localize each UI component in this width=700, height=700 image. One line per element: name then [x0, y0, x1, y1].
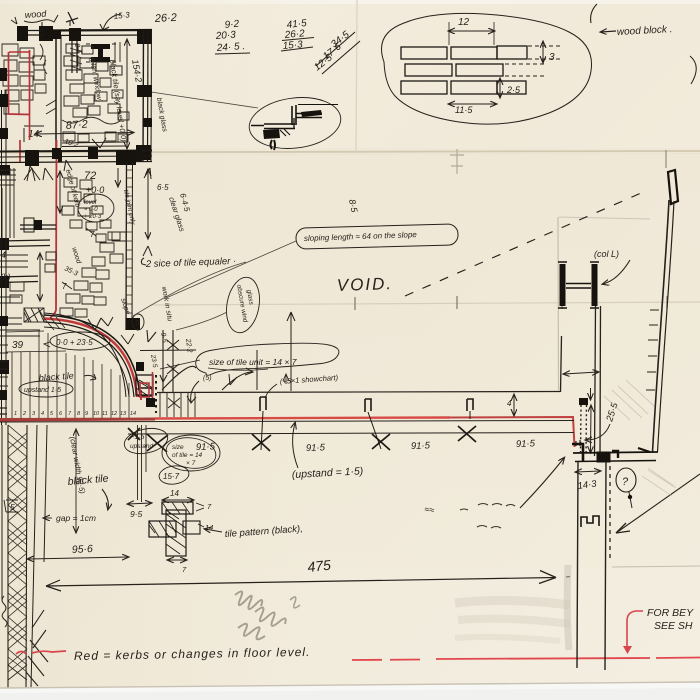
- svg-text:size of tile unit = 14 × 7: size of tile unit = 14 × 7: [209, 357, 297, 367]
- svg-text:9·5: 9·5: [130, 509, 143, 519]
- svg-text:12: 12: [458, 17, 470, 28]
- svg-text:upstand: upstand: [130, 443, 154, 450]
- svg-text:20·3: 20·3: [214, 30, 236, 42]
- svg-text:size: size: [172, 444, 184, 451]
- svg-text:39: 39: [12, 340, 24, 351]
- svg-text:4: 4: [1, 250, 6, 260]
- svg-text:+ 20·3: + 20·3: [84, 214, 102, 220]
- svg-text:+0·0: +0·0: [86, 185, 104, 195]
- svg-text:14: 14: [130, 411, 136, 417]
- svg-text:3: 3: [549, 52, 555, 63]
- svg-text:(col L): (col L): [594, 249, 619, 259]
- svg-text:95·6: 95·6: [72, 543, 94, 556]
- svg-text:?: ?: [622, 476, 629, 488]
- svg-text:of tile = 14: of tile = 14: [172, 452, 203, 459]
- svg-text:13: 13: [120, 411, 127, 417]
- svg-text:≈≈: ≈≈: [424, 504, 435, 515]
- svg-text:× 7: × 7: [186, 460, 196, 467]
- svg-text:15·7: 15·7: [163, 472, 180, 481]
- svg-text:2: 2: [22, 411, 26, 417]
- svg-text:9: 9: [135, 319, 140, 328]
- svg-text:11·5: 11·5: [455, 105, 473, 115]
- svg-text:24· 5 .: 24· 5 .: [215, 41, 245, 54]
- svg-text:FOR BEY: FOR BEY: [647, 607, 694, 619]
- svg-text:1: 1: [14, 411, 17, 417]
- svg-text:5: 5: [10, 502, 15, 512]
- svg-text:4: 4: [41, 411, 44, 417]
- svg-text:11: 11: [102, 411, 108, 417]
- svg-text:91·5: 91·5: [411, 440, 431, 452]
- svg-text:(5): (5): [203, 375, 212, 382]
- svg-text:91·5: 91·5: [516, 438, 536, 450]
- svg-text:gap = 1cm: gap = 1cm: [56, 513, 96, 523]
- svg-text:VOID.: VOID.: [336, 274, 393, 295]
- svg-text:0·0 + 23·5: 0·0 + 23·5: [56, 338, 93, 347]
- svg-text:6·5: 6·5: [157, 183, 169, 192]
- svg-text:-1·5: -1·5: [132, 434, 145, 441]
- svg-text:(k): (k): [0, 272, 11, 282]
- svg-text:4: 4: [507, 399, 512, 408]
- svg-text:475: 475: [307, 557, 332, 575]
- svg-text:9: 9: [85, 411, 88, 417]
- svg-text:10: 10: [93, 411, 100, 417]
- svg-text:2·5: 2·5: [506, 85, 521, 95]
- svg-text:91·5: 91·5: [306, 442, 326, 454]
- svg-text:upstand 1·5: upstand 1·5: [24, 387, 61, 394]
- svg-text:87·2: 87·2: [65, 118, 88, 132]
- svg-text:14: 14: [170, 489, 179, 498]
- svg-text:26·2: 26·2: [154, 12, 178, 25]
- svg-text:12: 12: [111, 411, 117, 417]
- svg-text:wood: wood: [24, 8, 47, 20]
- svg-text:SEE SH: SEE SH: [654, 620, 693, 632]
